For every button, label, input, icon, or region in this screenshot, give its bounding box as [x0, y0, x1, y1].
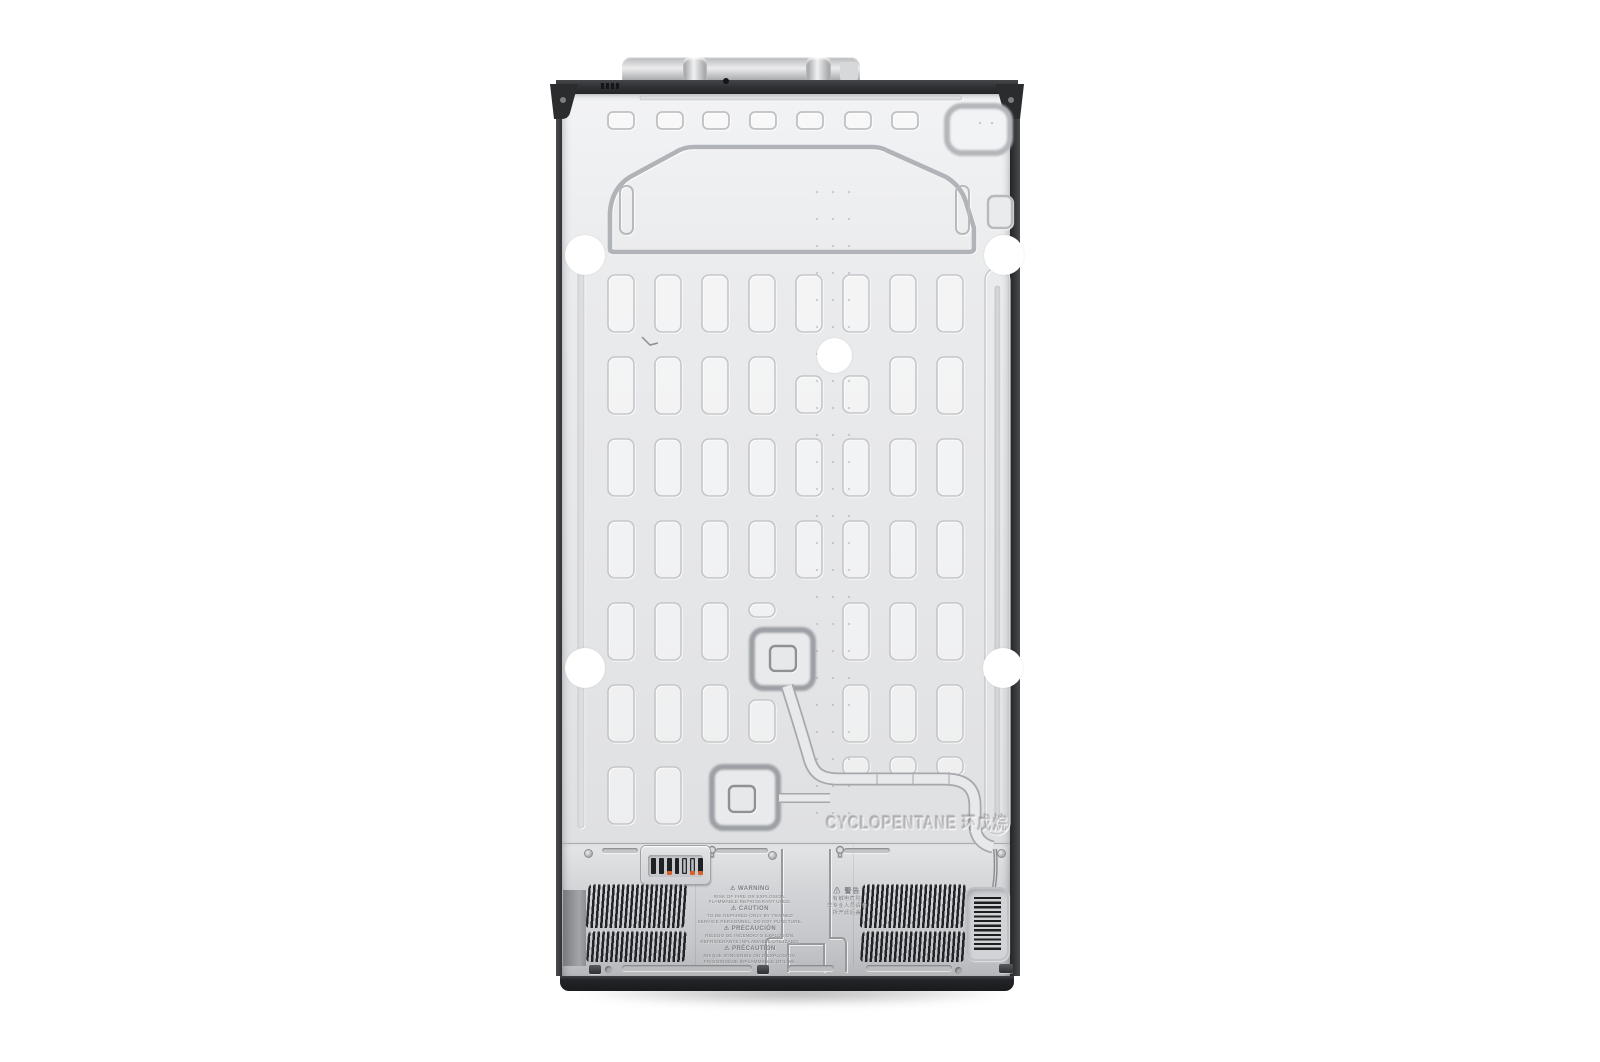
screw [997, 849, 1006, 858]
cyclopentane-marking: CYCLOPENTANE 环戊烷 [826, 809, 982, 834]
drain-grille [974, 897, 1001, 952]
plate-bar [651, 858, 656, 874]
plate-bar [690, 858, 695, 874]
warning-molded-text: ⚠ 警告有触电危险非专业人员请勿拆开此后盖 [816, 887, 878, 917]
sticker-circle [565, 648, 605, 688]
sticker-circle [984, 235, 1024, 275]
vent-left-top [585, 884, 687, 928]
base-kickplate [560, 974, 1014, 991]
plate-bar [682, 858, 687, 874]
base-slot [866, 965, 952, 971]
base-slot [788, 965, 834, 971]
back-panel [562, 94, 1010, 843]
screw [768, 851, 777, 860]
vent-right-bottom [860, 931, 966, 962]
cyclopentane-en: CYCLOPENTANE [826, 813, 957, 833]
left-side-wall [563, 890, 586, 966]
sticker-circle [983, 648, 1023, 688]
hinge-cover-left [683, 57, 707, 82]
top-edge-bar [556, 80, 1018, 95]
plate-bar [667, 858, 672, 874]
mount-slot [602, 848, 638, 853]
vent-slit [611, 83, 614, 89]
mount-slot [844, 848, 890, 853]
vent-slit [606, 83, 609, 89]
plate-bar [675, 858, 680, 874]
base-hole [955, 967, 962, 974]
base-slot [622, 965, 752, 971]
hinge-step [840, 62, 858, 81]
plate-bar [659, 858, 664, 874]
vent-left-bottom [586, 931, 687, 962]
mount-slot [716, 848, 768, 853]
cyclopentane-zh: 环戊烷 [962, 814, 1009, 833]
right-side-edge [1010, 84, 1020, 976]
hinge-cover-right [806, 57, 831, 82]
plate-bar [698, 858, 703, 874]
serial-plate-bars [648, 855, 703, 877]
sticker-circle [817, 338, 852, 373]
caution-molded-text: ⚠ WARNINGRISK OF FIRE OR EXPLOSION.FLAMM… [694, 886, 806, 966]
product-image: CYCLOPENTANE 环戊烷 ⚠ WARNINGRISK OF FIRE O… [0, 0, 1600, 1062]
base-hole [605, 966, 612, 973]
bolt [999, 964, 1013, 973]
vent-slit [601, 83, 604, 89]
sticker-circle [565, 235, 605, 275]
bolt [589, 965, 601, 974]
screw [584, 849, 593, 858]
screw-hole [723, 78, 729, 84]
vent-slit [616, 83, 619, 89]
bolt [757, 965, 769, 974]
